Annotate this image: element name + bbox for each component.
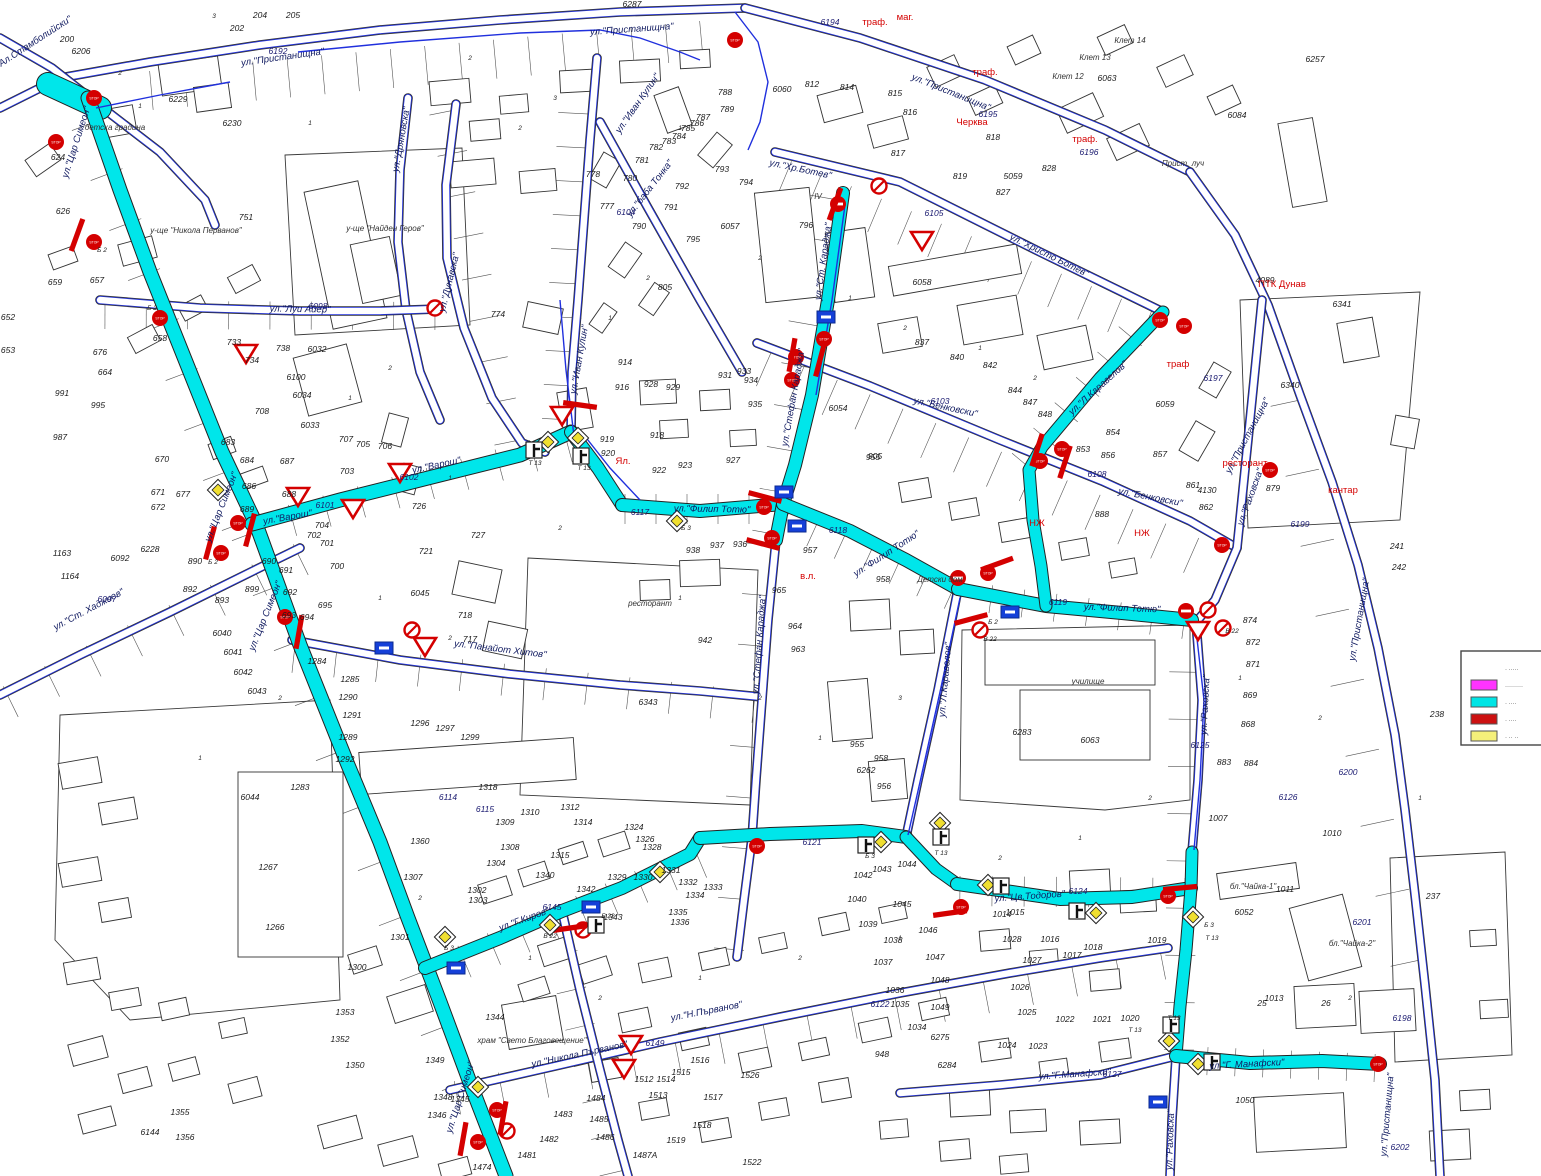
parcel-number: 700: [330, 561, 344, 571]
building-footprint: [730, 429, 757, 446]
parcel-number: 892: [183, 584, 197, 594]
parcel-number: 6230: [223, 118, 242, 128]
parcel-number: 1324: [625, 822, 644, 832]
sign-code-label: Т 13: [1128, 1027, 1141, 1034]
parcel-number: 778: [586, 169, 600, 179]
traffic-sign-stop: STOP: [470, 1134, 486, 1150]
building-footprint: [699, 389, 730, 411]
stop-sign-text: STOP: [1179, 325, 1189, 329]
parcel-number: 844: [1008, 385, 1022, 395]
parcel-number: 853: [1076, 444, 1090, 454]
parcel-number: 751: [239, 212, 253, 222]
parcel-number: 793: [715, 164, 729, 174]
parcel-number: 6092: [111, 553, 130, 563]
stop-sign-text: STOP: [1163, 895, 1173, 899]
street-code-label: 6118: [829, 525, 848, 535]
poi-label-red: в.л.: [800, 571, 816, 582]
poi-label-red: Черква: [956, 117, 988, 128]
parcel-number: 1353: [336, 1007, 355, 1017]
parcel-number: 721: [419, 546, 433, 556]
street-code-label: 6197: [1204, 373, 1223, 383]
house-number: 2: [387, 365, 392, 372]
parcel-number: 1355: [171, 1107, 190, 1117]
parcel-number: 659: [48, 277, 62, 287]
street-code-label: 6115: [476, 804, 495, 814]
parcel-number: 1308: [501, 842, 520, 852]
parcel-number: 6262: [857, 765, 876, 775]
parcel-number: 840: [950, 352, 964, 362]
sign-code-label: В 22: [983, 636, 997, 643]
parcel-number: 1516: [691, 1055, 710, 1065]
parcel-number: 707: [339, 434, 353, 444]
parcel-number: 1336: [671, 917, 690, 927]
sign-code-label: Б 2: [208, 559, 218, 566]
parcel-number: 934: [744, 375, 758, 385]
parcel-number: 237: [1425, 891, 1440, 901]
parcel-number: 1050: [1236, 1095, 1255, 1105]
parcel-number: 1021: [1093, 1014, 1112, 1024]
poi-label: бл."Чайка-2": [1329, 939, 1377, 948]
building-footprint: [754, 187, 820, 302]
parcel-number: 1514: [657, 1074, 676, 1084]
parcel-number: 1333: [704, 882, 723, 892]
parcel-number: 652: [1, 312, 15, 322]
no-entry-bar: [1181, 610, 1191, 613]
stop-sign-text: STOP: [1155, 319, 1165, 323]
stop-sign-text: STOP: [819, 338, 829, 342]
house-number: 1: [678, 125, 682, 132]
parcel-number: 871: [1246, 659, 1260, 669]
street-code-label: 6124: [1069, 886, 1088, 896]
house-number: 1: [698, 975, 702, 982]
parcel-number: 1037: [874, 957, 893, 967]
house-number: 1: [818, 735, 822, 742]
sign-code-label: Т 13: [1167, 1015, 1180, 1022]
parcel-number: 717: [463, 634, 477, 644]
parcel-number: 955: [850, 739, 864, 749]
parcel-number: 1027: [1023, 955, 1042, 965]
parcel-number: 964: [788, 621, 802, 631]
parcel-number: 1310: [521, 807, 540, 817]
street-code-label: 6101: [316, 500, 335, 510]
parcel-number: 1163: [53, 548, 72, 558]
parcel-number: 1329: [608, 872, 627, 882]
parcel-number: 936: [733, 539, 747, 549]
parcel-number: 1046: [919, 925, 938, 935]
cadastral-map-viewport[interactable]: STOPSTOPSTOPSTOPSTOPSTOPSTOPSTOPSTOPSTOP…: [0, 0, 1541, 1176]
parcel-number: 1015: [1006, 907, 1025, 917]
parcel-number: 1044: [898, 859, 917, 869]
stop-sign-text: STOP: [752, 845, 762, 849]
parcel-number: 676: [93, 347, 107, 357]
parcel-number: 664: [98, 367, 112, 377]
street-code-label: 6117: [631, 507, 650, 517]
legend-row-label: · ····: [1505, 718, 1517, 724]
house-number: 2: [467, 55, 472, 62]
poi-label: у-ще "Найден Геров": [345, 224, 425, 233]
parcel-number: 1513: [649, 1090, 668, 1100]
traffic-sign-noslash: [872, 179, 887, 194]
parcel-number: 1345: [451, 1094, 470, 1104]
parcel-number: 854: [1106, 427, 1120, 437]
parcel-number: 927: [726, 455, 740, 465]
parcel-number: 774: [491, 309, 505, 319]
parcel-number: 805: [658, 282, 672, 292]
parcel-number: 1267: [259, 862, 278, 872]
building-footprint: [559, 69, 594, 93]
parcel-number: 6060: [773, 84, 792, 94]
parcel-number: 995: [91, 400, 105, 410]
poi-label: Клет 14: [1114, 36, 1146, 45]
parcel-number: 935: [748, 399, 762, 409]
parcel-number: 1517: [704, 1092, 723, 1102]
parcel-number: 1043: [873, 864, 892, 874]
parcel-number: 931: [718, 370, 732, 380]
parcel-number: 705: [356, 439, 370, 449]
poi-label: ресторант: [627, 599, 672, 608]
parcel-number: 1519: [667, 1135, 686, 1145]
parcel-number: 1349: [426, 1055, 445, 1065]
parcel-number: 879: [1266, 483, 1280, 493]
parcel-number: 795: [686, 234, 700, 244]
info-sign-glyph: [1005, 611, 1015, 614]
building-footprint: [680, 49, 711, 69]
stop-sign-text: STOP: [233, 522, 243, 526]
house-number: 1: [378, 595, 382, 602]
legend-row-label: · ·· ··: [1505, 735, 1518, 741]
house-number: 1: [1238, 675, 1242, 682]
parcel-number: 1309: [496, 817, 515, 827]
parcel-number: 6063: [1098, 73, 1117, 83]
stop-sign-text: STOP: [492, 1109, 502, 1113]
parcel-number: 1346: [428, 1110, 447, 1120]
parcel-number: 1331: [662, 865, 681, 875]
parcel-number: 1350: [346, 1060, 365, 1070]
parcel-number: 1330: [634, 872, 653, 882]
parcel-number: 692: [283, 587, 297, 597]
sign-code-label: Б 3: [444, 945, 454, 952]
parcel-number: 1296: [411, 718, 430, 728]
parcel-number: 688: [282, 489, 296, 499]
parcel-number: 929: [666, 382, 680, 392]
parcel-number: 1023: [1029, 1041, 1048, 1051]
house-number: 1: [448, 475, 452, 482]
parcel-number: 923: [678, 460, 692, 470]
traffic-sign-blue: [817, 311, 835, 323]
parcel-number: 683: [221, 437, 235, 447]
parcel-number: 1024: [998, 1040, 1017, 1050]
traffic-sign-stop: STOP: [230, 515, 246, 531]
parcel-number: 1016: [1041, 934, 1060, 944]
parcel-number: 1483: [554, 1109, 573, 1119]
street-code-label: 6149: [646, 1038, 665, 1048]
house-number: 2: [447, 635, 452, 642]
poi-label: бл."Чайка-1": [1230, 882, 1278, 891]
parcel-number: 6043: [248, 686, 267, 696]
parcel-number: 6063: [1081, 735, 1100, 745]
street-code-label: 6114: [439, 792, 458, 802]
parcel-number: 872: [1246, 637, 1260, 647]
building-footprint: [849, 599, 891, 631]
traffic-sign-blue: [775, 486, 793, 498]
parcel-number: 1025: [1018, 1007, 1037, 1017]
parcel-number: 4130: [1198, 485, 1217, 495]
house-number: 2: [517, 125, 522, 132]
parcel-number: 687: [280, 456, 294, 466]
building-footprint: [449, 158, 496, 188]
parcel-number: 890: [188, 556, 202, 566]
stop-sign-text: STOP: [1265, 469, 1275, 473]
parcel-number: 6229: [169, 94, 188, 104]
building-footprint: [1020, 690, 1150, 760]
parcel-number: 1342: [577, 884, 596, 894]
parcel-number: 874: [1243, 615, 1257, 625]
parcel-number: 1302: [468, 885, 487, 895]
sign-code-label: Б 3: [681, 525, 691, 532]
parcel-number: 6343: [639, 697, 658, 707]
parcel-number: 1011: [1276, 884, 1295, 894]
parcel-number: 812: [805, 79, 819, 89]
poi-label-red: Ял.: [615, 456, 630, 467]
parcel-number: 938: [686, 545, 700, 555]
parcel-number: 733: [227, 337, 241, 347]
parcel-number: 1518: [693, 1120, 712, 1130]
poi-label-red: НЖ: [1029, 518, 1045, 529]
legend-row-label: ·········: [1505, 684, 1523, 690]
parcel-number: 1360: [411, 836, 430, 846]
info-sign-glyph: [586, 906, 596, 909]
parcel-number: 6275: [931, 1032, 950, 1042]
parcel-number: 1340: [536, 870, 555, 880]
parcel-number: 1312: [561, 802, 580, 812]
traffic-sign-blue: [375, 642, 393, 654]
traffic-sign-stop: STOP: [1152, 312, 1168, 328]
sign-code-label: Т 13: [528, 460, 541, 467]
poi-label: у-ще "Никола Перванов": [149, 226, 243, 235]
parcel-number: 1299: [461, 732, 480, 742]
poi-label-red: НЖ: [1134, 528, 1150, 539]
parcel-number: 1315: [551, 850, 570, 860]
parcel-number: 1284: [308, 656, 327, 666]
parcel-number: 738: [276, 343, 290, 353]
parcel-number: 690: [262, 556, 276, 566]
parcel-number: 1285: [341, 674, 360, 684]
house-number: 1: [348, 395, 352, 402]
traffic-sign-tbox: [933, 829, 949, 845]
street-code-label: 6122: [871, 999, 890, 1009]
parcel-number: 914: [618, 357, 632, 367]
traffic-sign-stop: STOP: [1176, 318, 1192, 334]
house-number: 1: [138, 103, 142, 110]
parcel-number: 6283: [1013, 727, 1032, 737]
parcel-number: 1300: [348, 962, 367, 972]
parcel-number: 1332: [679, 877, 698, 887]
parcel-number: 1307: [404, 872, 423, 882]
parcel-number: 883: [1217, 757, 1231, 767]
parcel-number: 6033: [301, 420, 320, 430]
parcel-number: 1485: [590, 1114, 609, 1124]
street-name-label: ул."Филип Тотю": [673, 503, 751, 515]
poi-label: училище: [1071, 677, 1105, 686]
house-number: 1: [198, 755, 202, 762]
street-code-label: 6202: [1391, 1142, 1410, 1152]
house-number: 2: [757, 695, 762, 702]
parcel-number: 1020: [1121, 1013, 1140, 1023]
parcel-number: 796: [799, 220, 813, 230]
parcel-number: 1526: [741, 1070, 760, 1080]
building-footprint: [1337, 317, 1379, 363]
parcel-number: 1334: [686, 890, 705, 900]
parcel-number: 6058: [913, 277, 932, 287]
house-number: 1: [1078, 835, 1082, 842]
parcel-number: 958: [874, 753, 888, 763]
house-number: 1: [978, 345, 982, 352]
parcel-number: 1318: [479, 782, 498, 792]
stop-sign-text: STOP: [216, 552, 226, 556]
traffic-sign-tbox: [573, 448, 589, 464]
parcel-number: 1522: [743, 1157, 762, 1167]
stop-sign-text: STOP: [759, 506, 769, 510]
parcel-number: 1045: [893, 899, 912, 909]
map-legend: · ··············· ····· ····· ·· ··: [1461, 651, 1541, 745]
traffic-sign-blue: [1149, 1096, 1167, 1108]
parcel-number: 26: [1320, 998, 1331, 1008]
parcel-number: 6052: [1235, 907, 1254, 917]
parcel-number: 1297: [436, 723, 455, 733]
house-number: 2: [557, 525, 562, 532]
parcel-number: 702: [307, 530, 321, 540]
house-number: 2: [1147, 795, 1152, 802]
parcel-number: 694: [300, 612, 314, 622]
parcel-number: 1017: [1063, 950, 1082, 960]
building-footprint: [1254, 1093, 1347, 1153]
house-number: 2: [277, 695, 282, 702]
sign-code-label: Т 13: [934, 850, 947, 857]
building-footprint: [1391, 415, 1420, 449]
cadastral-map-canvas[interactable]: STOPSTOPSTOPSTOPSTOPSTOPSTOPSTOPSTOPSTOP…: [0, 0, 1541, 1176]
parcel-number: 1335: [669, 907, 688, 917]
parcel-number: 827: [996, 187, 1010, 197]
sign-code-label: Б 2: [988, 619, 998, 626]
parcel-number: 626: [56, 206, 70, 216]
parcel-number: 1481: [518, 1150, 537, 1160]
traffic-sign-tbox: [858, 837, 874, 853]
parcel-number: 1034: [908, 1022, 927, 1032]
parcel-number: 1301: [391, 932, 410, 942]
parcel-number: 957: [803, 545, 817, 555]
parcel-number: 1344: [486, 1012, 505, 1022]
parcel-number: 1039: [859, 919, 878, 929]
parcel-number: 888: [1095, 509, 1109, 519]
street-code-label: 6200: [1339, 767, 1358, 777]
parcel-number: 1314: [574, 817, 593, 827]
parcel-number: 1010: [1323, 828, 1342, 838]
poi-label: детска градина: [85, 123, 146, 132]
street-code-label: 6126: [1279, 792, 1298, 802]
poi-label-red: траф: [1167, 359, 1190, 370]
legend-swatch: [1471, 680, 1497, 690]
stop-sign-text: STOP: [1057, 448, 1067, 452]
info-sign-glyph: [779, 491, 789, 494]
parcel-number: 958: [876, 574, 890, 584]
building-footprint: [1359, 989, 1416, 1034]
parcel-number: 791: [664, 202, 678, 212]
stop-sign-text: STOP: [730, 39, 740, 43]
house-number: 2: [1347, 995, 1352, 1002]
legend-row-label: · ·····: [1505, 667, 1519, 673]
parcel-number: 706: [378, 441, 392, 451]
parcel-number: 658: [153, 333, 167, 343]
building-footprint: [680, 559, 721, 586]
stop-sign-text: STOP: [1217, 544, 1227, 548]
street-name-label: ул."Раховска": [1164, 1109, 1177, 1171]
stop-sign-text: STOP: [767, 537, 777, 541]
parcel-number: 6045: [411, 588, 430, 598]
parcel-number: 922: [652, 465, 666, 475]
poi-label: Детски дом: [916, 575, 963, 584]
poi-label: Прист. луч: [1162, 159, 1204, 168]
poi-label-red: траф.: [972, 67, 997, 78]
poi-label-red: траф.: [862, 17, 887, 28]
parcel-number: 963: [791, 644, 805, 654]
traffic-sign-noslash: [1201, 603, 1216, 618]
info-sign-glyph: [792, 525, 802, 528]
parcel-number: 1283: [291, 782, 310, 792]
traffic-sign-stop: STOP: [152, 310, 168, 326]
street-code-label: 6194: [821, 17, 840, 27]
traffic-sign-noentry: [1178, 603, 1194, 619]
parcel-number: 6059: [1156, 399, 1175, 409]
parcel-number: 814: [840, 82, 854, 92]
parcel-number: 1022: [1056, 1014, 1075, 1024]
parcel-number: 684: [240, 455, 254, 465]
parcel-number: 790: [632, 221, 646, 231]
parcel-number: 948: [875, 1049, 889, 1059]
parcel-number: 1482: [540, 1134, 559, 1144]
parcel-number: 893: [215, 595, 229, 605]
street-code-label: 6145: [543, 902, 562, 912]
street-code-label: 6125: [1191, 740, 1210, 750]
parcel-number: 816: [903, 107, 917, 117]
poi-label: IV: [814, 192, 822, 201]
traffic-sign-stop: STOP: [1214, 537, 1230, 553]
parcel-number: 241: [1389, 541, 1404, 551]
parcel-number: 672: [151, 502, 165, 512]
parcel-number: 1486: [596, 1132, 615, 1142]
poi-label: Клет 13: [1079, 53, 1111, 62]
traffic-sign-noslash: [405, 623, 420, 638]
parcel-number: 1290: [339, 692, 358, 702]
parcel-number: 677: [176, 489, 190, 499]
parcel-number: 6041: [224, 647, 243, 657]
house-number: 1: [308, 120, 312, 127]
parcel-number: 5059: [1004, 171, 1023, 181]
stop-sign-text: STOP: [1373, 1063, 1383, 1067]
parcel-number: 1356: [176, 1132, 195, 1142]
house-number: 2: [1032, 375, 1037, 382]
parcel-number: 1049: [931, 1002, 950, 1012]
house-number: 2: [997, 855, 1002, 862]
parcel-number: 1484: [587, 1093, 606, 1103]
parcel-number: 777: [600, 201, 614, 211]
house-number: 2: [757, 255, 762, 262]
parcel-number: 6284: [938, 1060, 957, 1070]
poi-label: Клет 12: [1052, 72, 1084, 81]
parcel-number: 955: [866, 452, 880, 462]
parcel-number: 782: [649, 142, 663, 152]
poi-label-red: ресторант: [1222, 458, 1268, 469]
traffic-sign-tbox: [1069, 903, 1085, 919]
